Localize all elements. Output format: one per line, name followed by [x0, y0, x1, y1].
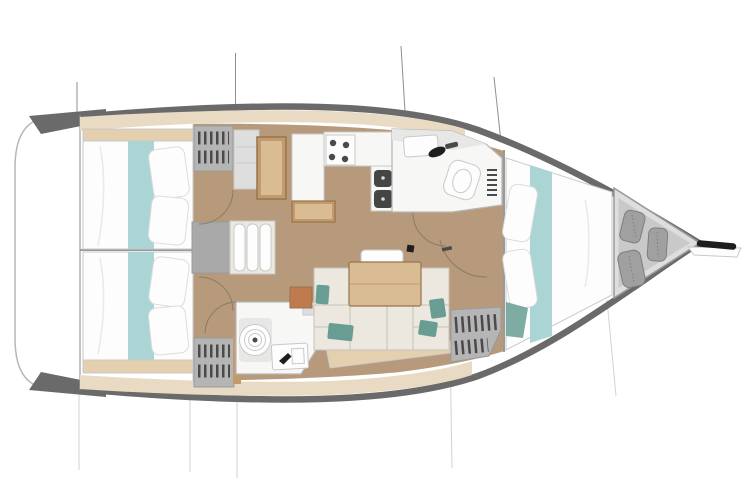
drain [381, 176, 385, 180]
burner [330, 140, 336, 146]
hanging-locker-port [194, 126, 233, 171]
burner [343, 142, 349, 148]
accent-cushion [315, 285, 329, 305]
section-line [607, 300, 616, 396]
anchor-locker [614, 188, 700, 298]
pillow [148, 305, 190, 356]
side-locker [290, 287, 312, 308]
drain [381, 197, 385, 201]
accent-cushion [429, 298, 446, 319]
aft-cabin-starboard [83, 252, 193, 373]
accent-cushion [327, 323, 354, 342]
boat-floor-plan [0, 0, 744, 496]
floor-plan-figure [0, 0, 744, 496]
toilet [240, 325, 271, 356]
bed-runner [128, 252, 154, 360]
pillow [148, 195, 190, 246]
hanging-locker-starboard [194, 338, 234, 387]
mast-step [406, 245, 414, 253]
stove [326, 135, 355, 165]
step-tread [234, 224, 245, 271]
galley-counter-left [292, 134, 324, 207]
bowsprit [700, 244, 733, 247]
step-tread [260, 224, 271, 271]
burner [329, 154, 335, 160]
aft-head [236, 302, 318, 374]
forward-cabin [501, 158, 612, 350]
bed-shelf [83, 129, 193, 142]
toilet-drain [253, 338, 258, 343]
companionway-steps [192, 221, 275, 274]
pillow [148, 256, 190, 309]
pillow [148, 146, 191, 201]
accent-cushion [418, 320, 438, 338]
steps-housing [192, 222, 233, 273]
burner [342, 156, 348, 162]
bed-shelf [83, 360, 193, 373]
fridge-cabinet [234, 130, 259, 189]
chart-table-top [261, 141, 282, 195]
aft-cabin-port [83, 129, 193, 249]
step-tread [247, 224, 258, 271]
section-line [451, 374, 453, 468]
galley-counter-bar-top [295, 204, 332, 219]
